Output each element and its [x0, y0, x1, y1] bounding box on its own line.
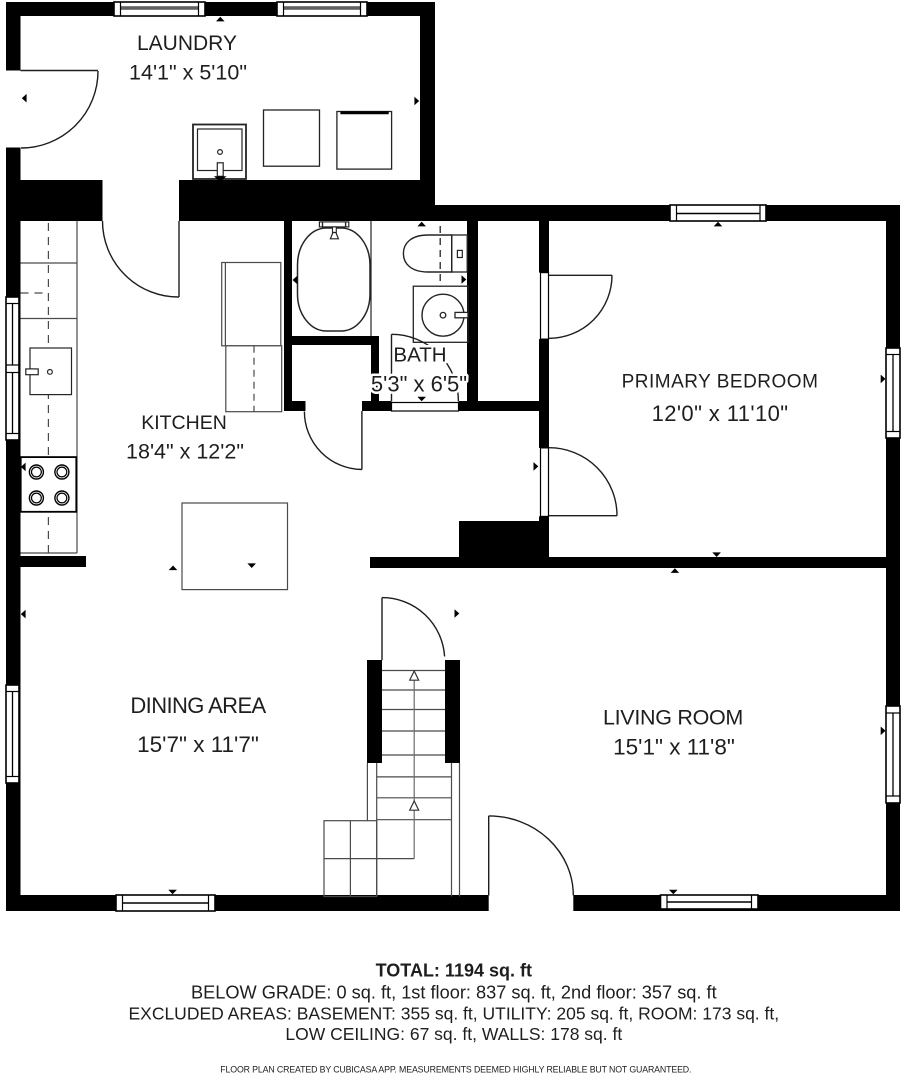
svg-text:12'0" x 11'10": 12'0" x 11'10" — [652, 401, 789, 426]
svg-text:LIVING ROOM: LIVING ROOM — [603, 706, 743, 730]
svg-text:18'4" x 12'2": 18'4" x 12'2" — [126, 440, 244, 464]
svg-text:15'7" x 11'7": 15'7" x 11'7" — [137, 732, 259, 757]
svg-text:PRIMARY BEDROOM: PRIMARY BEDROOM — [622, 372, 819, 393]
svg-text:KITCHEN: KITCHEN — [141, 412, 227, 434]
svg-text:DINING AREA: DINING AREA — [130, 693, 266, 718]
svg-text:BATH: BATH — [393, 344, 446, 367]
svg-text:LOW CEILING: 67 sq. ft, WALLS:: LOW CEILING: 67 sq. ft, WALLS: 178 sq. f… — [285, 1024, 622, 1044]
svg-text:14'1" x 5'10": 14'1" x 5'10" — [129, 61, 247, 85]
svg-text:15'1" x 11'8": 15'1" x 11'8" — [613, 735, 735, 760]
svg-text:EXCLUDED AREAS: BASEMENT: 355: EXCLUDED AREAS: BASEMENT: 355 sq. ft, UT… — [128, 1004, 779, 1024]
svg-text:TOTAL: 1194 sq. ft: TOTAL: 1194 sq. ft — [376, 961, 532, 981]
svg-text:FLOOR PLAN CREATED BY CUBICASA: FLOOR PLAN CREATED BY CUBICASA APP. MEAS… — [220, 1064, 691, 1074]
svg-text:BELOW GRADE: 0 sq. ft, 1st flo: BELOW GRADE: 0 sq. ft, 1st floor: 837 sq… — [191, 983, 717, 1003]
svg-text:5'3" x 6'5": 5'3" x 6'5" — [371, 372, 467, 397]
svg-text:LAUNDRY: LAUNDRY — [137, 32, 237, 55]
